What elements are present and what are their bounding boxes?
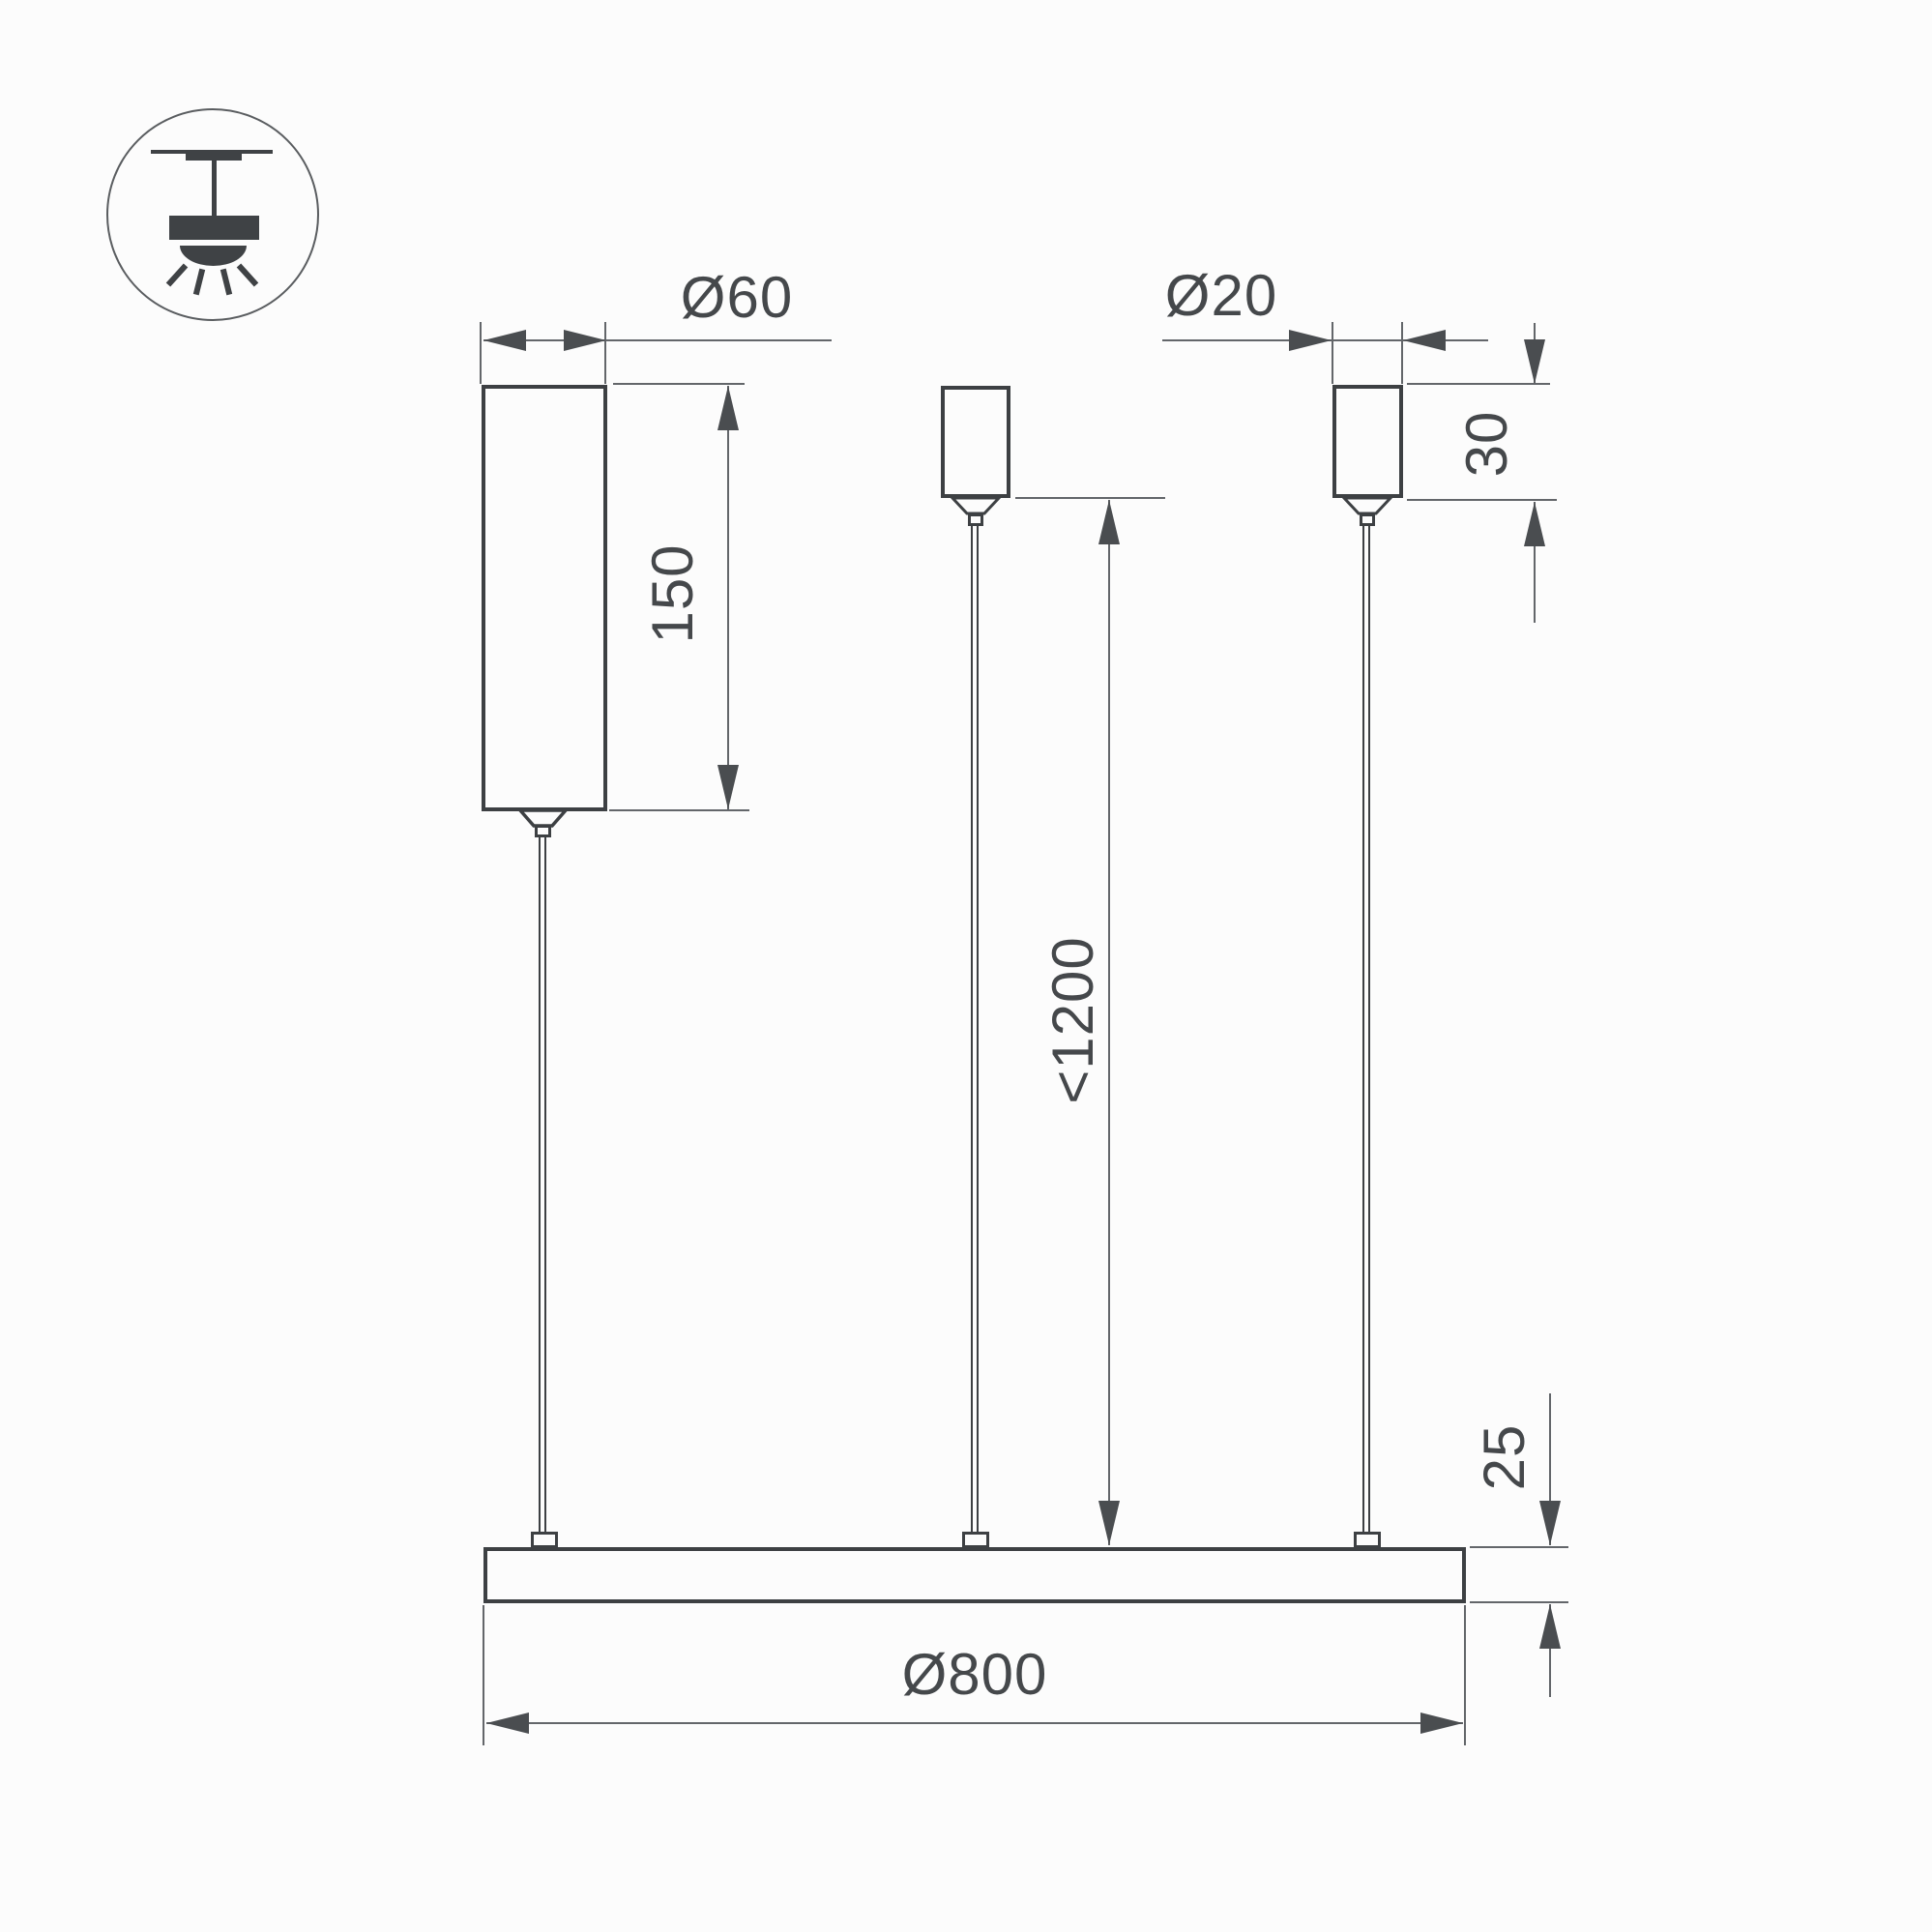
- suspension-cable-left: [539, 837, 546, 1532]
- ext-line: [1332, 322, 1333, 384]
- icon-stem: [212, 161, 217, 216]
- dimension-label-driver-diameter: Ø60: [681, 269, 793, 327]
- ext-line: [1015, 497, 1165, 499]
- arrowhead-left: [1403, 330, 1446, 351]
- ext-line: [1470, 1546, 1568, 1548]
- dimension-label-canopy-height: 30: [1458, 411, 1516, 478]
- canopy-right-grip: [1360, 513, 1375, 526]
- ext-line: [1464, 1605, 1466, 1745]
- ext-line: [480, 322, 482, 384]
- arrowhead-down: [717, 765, 739, 809]
- icon-lamp-housing: [169, 216, 259, 240]
- arrowhead-up: [1098, 500, 1120, 544]
- dimension-label-panel-diameter: Ø800: [902, 1646, 1048, 1704]
- suspension-cable-right: [1362, 526, 1370, 1532]
- driver-cable-grip: [535, 825, 551, 837]
- dimension-label-driver-length: 150: [644, 543, 702, 643]
- dim-line: [486, 1722, 1463, 1724]
- canopy-middle-grip: [968, 513, 983, 526]
- arrowhead-up: [1524, 502, 1545, 546]
- cable-connector-right: [1354, 1532, 1381, 1548]
- ext-line: [1470, 1601, 1568, 1603]
- canopy-right: [1332, 385, 1403, 498]
- arrowhead-down: [1524, 339, 1545, 384]
- drawing-sheet: Ø60 150 Ø20 30 <1200 25 Ø800: [0, 0, 1932, 1932]
- arrowhead-right: [1420, 1712, 1463, 1734]
- arrowhead-left: [486, 1712, 529, 1734]
- ext-line: [1407, 499, 1557, 501]
- dim-line: [1108, 500, 1110, 1545]
- cable-connector-left: [531, 1532, 558, 1548]
- dim-line: [1333, 339, 1402, 341]
- icon-track-bar: [186, 154, 242, 161]
- ext-line: [609, 809, 749, 811]
- arrowhead-down: [1098, 1501, 1120, 1545]
- suspension-cable-middle: [971, 526, 979, 1532]
- dim-line: [727, 386, 729, 809]
- arrowhead-right: [1289, 330, 1332, 351]
- dimension-label-panel-thickness: 25: [1476, 1424, 1534, 1491]
- driver-box: [482, 385, 607, 811]
- ext-line: [483, 1605, 484, 1745]
- ext-line: [613, 383, 745, 385]
- lamp-panel: [483, 1547, 1466, 1603]
- arrowhead-left: [483, 330, 526, 351]
- dimension-label-suspension-length: <1200: [1044, 936, 1102, 1104]
- arrowhead-right: [564, 330, 606, 351]
- arrowhead-down: [1539, 1501, 1561, 1545]
- arrowhead-up: [1539, 1604, 1561, 1649]
- dimension-label-canopy-diameter: Ø20: [1165, 267, 1277, 325]
- arrowhead-up: [717, 386, 739, 430]
- cable-connector-middle: [962, 1532, 989, 1548]
- dim-line: [483, 339, 832, 341]
- canopy-middle: [941, 386, 1010, 498]
